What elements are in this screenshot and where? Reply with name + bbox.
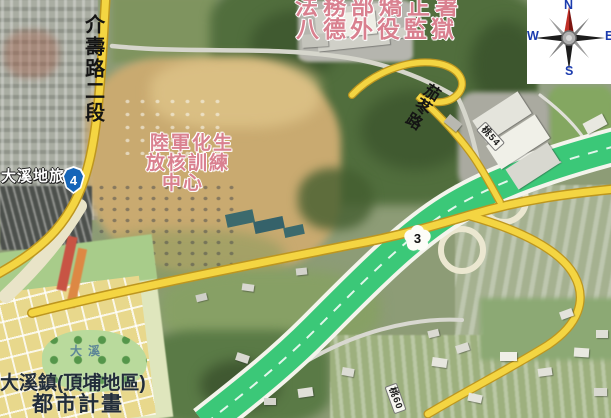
satellite-map: 介壽路二段 茄苳路 法務部矯正署 八德外役監獄 陸軍化生 放核訓練 中心 大溪地… bbox=[0, 0, 611, 418]
army-center-label-line2: 放核訓練 bbox=[146, 154, 230, 175]
compass-s: S bbox=[565, 64, 573, 78]
provincial-highway-4-number: 4 bbox=[64, 168, 83, 192]
compass-rose: N W E S bbox=[527, 0, 611, 84]
army-center-label-line3: 中心 bbox=[162, 174, 204, 195]
urban-plan-label-line1: 大溪鎮(頂埔地區) bbox=[0, 374, 146, 395]
labels-layer: 介壽路二段 茄苳路 法務部矯正署 八德外役監獄 陸軍化生 放核訓練 中心 大溪地… bbox=[0, 0, 611, 418]
compass-n: N bbox=[564, 0, 573, 12]
provincial-highway-4-shield: 4 bbox=[62, 166, 85, 194]
county-road-60-sign: 桃60 bbox=[384, 383, 406, 415]
road-label-jiadong: 茄苳路 bbox=[400, 79, 442, 131]
compass-e: E bbox=[605, 29, 611, 43]
prison-label-line2: 八德外役監獄 bbox=[296, 17, 458, 42]
army-center-label-line1: 陸軍化生 bbox=[150, 134, 234, 155]
urban-plan-label-line2: 都市計畫 bbox=[32, 394, 124, 417]
park-label: 大溪 bbox=[70, 345, 106, 358]
freeway-3-badge: 3 bbox=[408, 229, 427, 248]
county-road-54-sign: 桃54 bbox=[476, 121, 505, 151]
road-label-jieshou: 介壽路二段 bbox=[81, 14, 103, 124]
compass-w: W bbox=[527, 29, 539, 43]
